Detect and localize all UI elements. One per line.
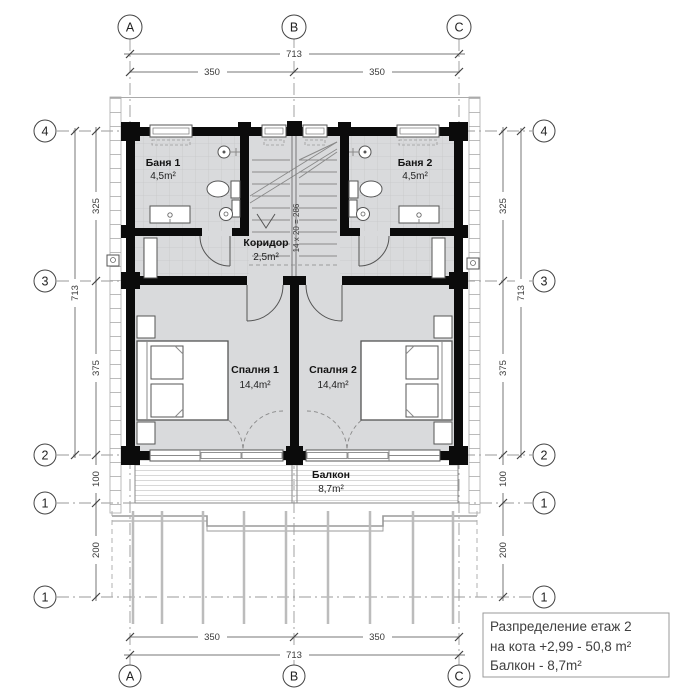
grid-bubble-2-right: 2 — [541, 449, 548, 463]
grid-bubble-1a-left: 1 — [42, 497, 49, 511]
downpipe-symbol-right — [467, 258, 479, 269]
toilet-icon — [360, 181, 382, 197]
dim-right-2: 375 — [498, 360, 509, 376]
grid-bubble-B-bottom: B — [290, 670, 298, 684]
corridor-name: Коридор — [243, 237, 288, 249]
bedroom2-name: Спалня 2 — [309, 364, 357, 376]
grid-bubble-A-top: A — [126, 21, 135, 35]
corridor-area: 2,5m² — [253, 252, 279, 263]
wardrobe-left — [144, 238, 157, 278]
balcony-deck — [112, 460, 477, 624]
toilet-icon — [207, 181, 229, 197]
floor-plan-canvas: 14 x 20 = 286 — [0, 0, 700, 700]
floor-plan-page: 14 x 20 = 286 — [0, 0, 700, 700]
grid-bubble-A-bottom: A — [126, 670, 135, 684]
nightstand — [137, 422, 155, 444]
grid-bubble-1b-right: 1 — [541, 591, 548, 605]
bidet-icon — [220, 208, 233, 221]
grid-bubble-3-right: 3 — [541, 275, 548, 289]
bedroom2-area: 14,4m² — [317, 380, 349, 391]
grid-bubble-B-top: B — [290, 21, 298, 35]
roof-rafters — [133, 511, 453, 624]
dim-bottom-2: 350 — [369, 632, 385, 643]
eave-outline — [112, 511, 477, 597]
dim-left-1: 325 — [91, 198, 102, 214]
dim-left-2: 375 — [91, 360, 102, 376]
dim-left-total: 713 — [70, 285, 81, 301]
dim-left-4: 200 — [91, 542, 102, 558]
grid-bubble-4-right: 4 — [541, 125, 548, 139]
balcony-area: 8,7m² — [318, 484, 344, 495]
grid-bubble-3-left: 3 — [42, 275, 49, 289]
nightstand — [434, 422, 452, 444]
dim-right-total: 713 — [516, 285, 527, 301]
dim-bottom-1: 350 — [204, 632, 220, 643]
bath2-area: 4,5m² — [402, 171, 428, 182]
bidet-icon — [357, 208, 370, 221]
bedroom1-area: 14,4m² — [239, 380, 271, 391]
wardrobe-right — [432, 238, 445, 278]
title-block: Разпределение етаж 2 на кота +2,99 - 50,… — [483, 613, 669, 677]
dim-top-total: 713 — [286, 49, 302, 60]
downpipe-symbol-left — [107, 255, 119, 266]
grid-bubble-4-left: 4 — [42, 125, 49, 139]
title-line-1: Разпределение етаж 2 — [490, 619, 632, 634]
title-line-3: Балкон - 8,7m² — [490, 658, 582, 673]
grid-bubble-1b-left: 1 — [42, 591, 49, 605]
nightstand — [137, 316, 155, 338]
dim-top-1: 350 — [204, 67, 220, 78]
dim-top-2: 350 — [369, 67, 385, 78]
bath1-area: 4,5m² — [150, 171, 176, 182]
stair-formula-label: 14 x 20 = 286 — [292, 203, 301, 252]
bedroom1-name: Спалня 1 — [231, 364, 279, 376]
dim-right-3: 100 — [498, 471, 509, 487]
dim-right-1: 325 — [498, 198, 509, 214]
nightstand — [434, 316, 452, 338]
grid-bubble-C-top: C — [454, 21, 463, 35]
title-line-2: на кота +2,99 - 50,8 m² — [490, 639, 632, 654]
dim-left-3: 100 — [91, 471, 102, 487]
bath2-name: Баня 2 — [398, 157, 433, 169]
dim-bottom-total: 713 — [286, 650, 302, 661]
bath1-name: Баня 1 — [146, 157, 181, 169]
balcony-name: Балкон — [312, 469, 350, 481]
grid-bubble-1a-right: 1 — [541, 497, 548, 511]
grid-bubble-2-left: 2 — [42, 449, 49, 463]
dim-right-4: 200 — [498, 542, 509, 558]
grid-bubble-C-bottom: C — [454, 670, 463, 684]
